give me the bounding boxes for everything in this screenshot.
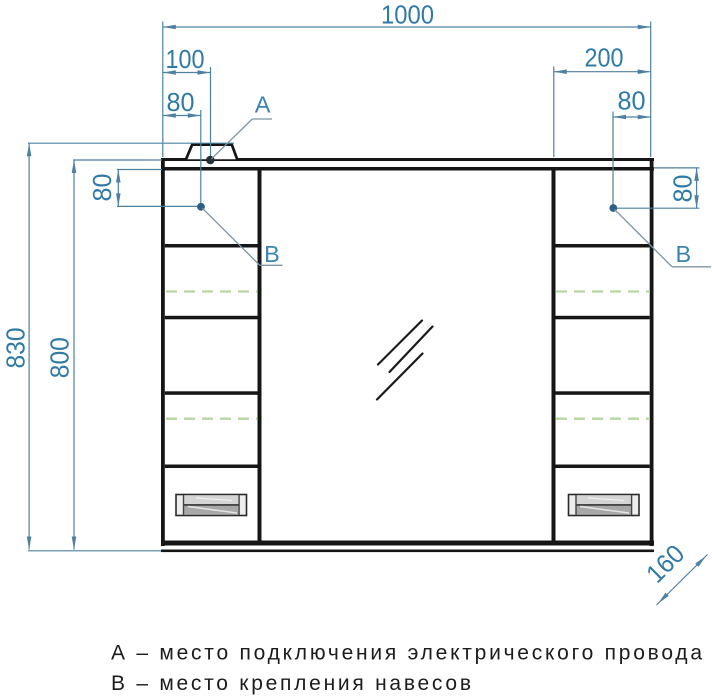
svg-text:А: А bbox=[255, 92, 271, 118]
svg-text:80: 80 bbox=[167, 87, 195, 117]
svg-text:В: В bbox=[264, 241, 280, 267]
svg-text:В: В bbox=[675, 241, 691, 267]
svg-text:1000: 1000 bbox=[381, 0, 434, 30]
svg-text:80: 80 bbox=[87, 174, 117, 202]
svg-text:800: 800 bbox=[45, 337, 75, 378]
svg-text:В – место крепления навесов: В – место крепления навесов bbox=[111, 672, 471, 695]
svg-text:80: 80 bbox=[668, 175, 698, 203]
svg-text:830: 830 bbox=[1, 328, 31, 369]
svg-text:80: 80 bbox=[618, 86, 646, 116]
svg-text:А – место подключения электрич: А – место подключения электрического про… bbox=[111, 642, 702, 665]
svg-text:100: 100 bbox=[166, 44, 205, 74]
svg-text:200: 200 bbox=[585, 43, 624, 73]
